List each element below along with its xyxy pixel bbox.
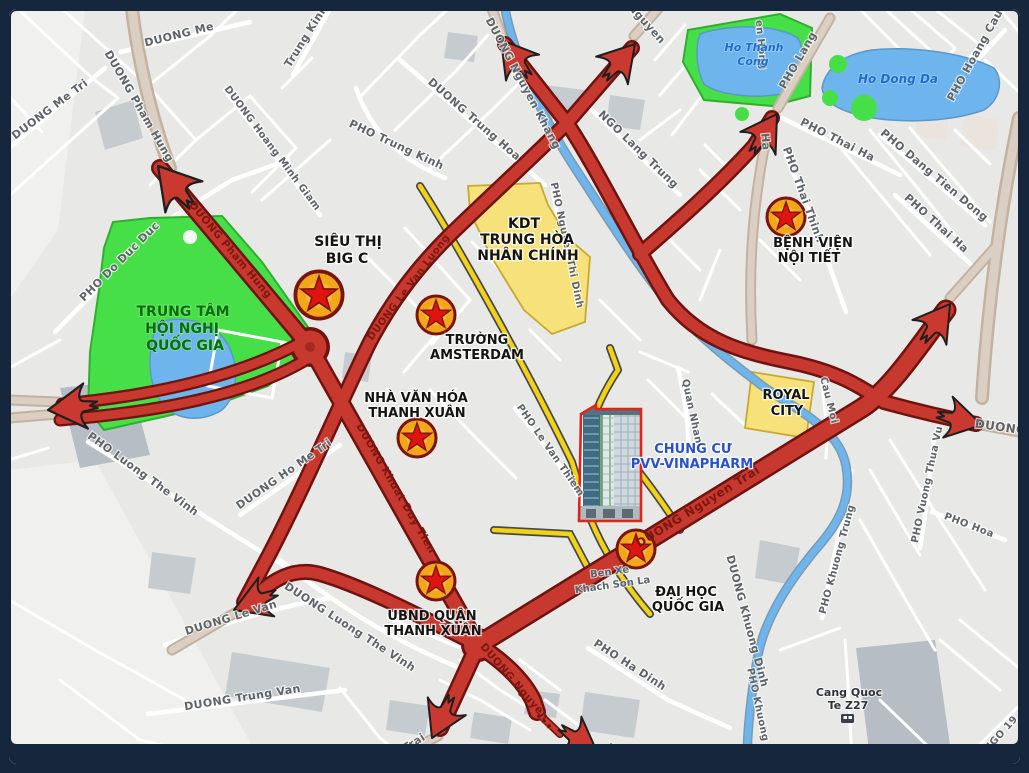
label-benh-vien: BỆNH VIỆN — [773, 235, 853, 251]
label-trung-tam: TRUNG TÂM — [136, 303, 229, 320]
label-kdt: KDT — [508, 216, 540, 232]
label-amsterdam: AMSTERDAM — [430, 348, 524, 363]
road-label-44: Cong — [737, 55, 768, 68]
star-marker-nha-van-hoa-thanh-xuan[interactable] — [398, 419, 436, 457]
label-nha-van-hoa: NHÀ VĂN HÓA — [364, 390, 468, 406]
label-pvv-vinapharm: PVV-VINAPHARM — [631, 457, 753, 472]
label-sieu-thi: SIÊU THỊ — [314, 233, 382, 250]
label-noi-tiet: NỘI TIẾT — [778, 249, 841, 266]
label-trung-hoa: TRUNG HÒA — [480, 230, 574, 248]
map-window: DUONG Me TriDUONG Pham HungDUONG MeTrung… — [0, 0, 1029, 773]
road-label-45: Ho Dong Da — [858, 72, 938, 86]
label-truong: TRƯỜNG — [446, 332, 509, 348]
label-ubnd: UBND QUẬN — [387, 608, 476, 624]
port-icon — [841, 714, 854, 723]
label-nvh-thanh-xuan: THANH XUÂN — [368, 405, 465, 421]
label-cang-quoc: Cang Quoc — [816, 686, 882, 699]
star-marker-ubnd-quan-thanh-xuan[interactable] — [417, 562, 455, 600]
label-royal: ROYAL — [762, 388, 809, 403]
label-chung-cu: CHUNG CƯ — [654, 442, 732, 457]
label-dh-quoc-gia: QUỐC GIA — [652, 597, 724, 615]
map-canvas[interactable]: DUONG Me TriDUONG Pham HungDUONG MeTrung… — [9, 9, 1020, 764]
road-label-43: Ho Thanh — [724, 41, 783, 54]
label-te-z27: Te Z27 — [828, 699, 869, 712]
map-viewport[interactable]: DUONG Me TriDUONG Pham HungDUONG MeTrung… — [9, 9, 1020, 764]
label-big-c: BIG C — [326, 251, 369, 267]
star-marker-benh-vien-noi-tiet[interactable] — [767, 198, 805, 236]
label-dai-hoc: ĐẠI HỌC — [655, 585, 717, 600]
road-label-12: Ha — [758, 132, 772, 151]
park-dot — [183, 230, 197, 244]
label-city: CITY — [771, 404, 804, 419]
label-hoi-nghi: HỘI NGHỊ — [145, 319, 219, 337]
label-ubnd-thanh-xuan: THANH XUÂN — [384, 623, 481, 639]
label-nhan-chinh: NHÂN CHÍNH — [477, 247, 579, 264]
star-marker-sieu-thi-big-c[interactable] — [295, 271, 342, 318]
star-marker-truong-amsterdam[interactable] — [417, 296, 455, 334]
